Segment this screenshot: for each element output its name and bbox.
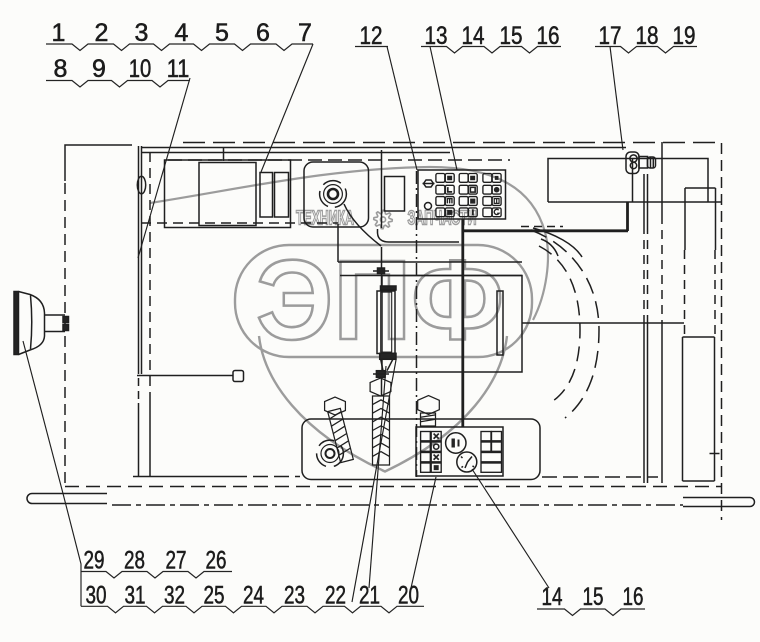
svg-text:26: 26	[206, 547, 227, 575]
svg-text:31: 31	[125, 582, 146, 610]
svg-text:20: 20	[398, 582, 419, 610]
svg-text:24: 24	[243, 582, 264, 610]
svg-text:25: 25	[204, 582, 225, 610]
svg-text:8: 8	[54, 55, 68, 83]
svg-text:1: 1	[52, 19, 66, 47]
svg-text:13: 13	[425, 22, 448, 50]
svg-text:14: 14	[542, 583, 563, 611]
svg-text:11: 11	[167, 55, 190, 83]
svg-text:15: 15	[583, 583, 604, 611]
svg-text:5: 5	[215, 19, 229, 47]
svg-text:4: 4	[175, 19, 189, 47]
svg-text:17: 17	[599, 22, 622, 50]
svg-text:21: 21	[359, 582, 380, 610]
svg-text:27: 27	[166, 547, 187, 575]
svg-text:6: 6	[256, 19, 270, 47]
svg-text:32: 32	[164, 582, 185, 610]
svg-text:3: 3	[135, 19, 149, 47]
svg-text:9: 9	[92, 55, 106, 83]
svg-text:23: 23	[284, 582, 305, 610]
svg-text:16: 16	[537, 22, 560, 50]
svg-text:29: 29	[84, 547, 105, 575]
svg-text:2: 2	[95, 19, 109, 47]
svg-text:19: 19	[673, 22, 696, 50]
svg-text:ЭПФ: ЭПФ	[256, 237, 504, 363]
svg-text:10: 10	[129, 55, 152, 83]
svg-text:14: 14	[462, 22, 485, 50]
svg-text:30: 30	[86, 582, 107, 610]
svg-text:18: 18	[636, 22, 659, 50]
svg-text:15: 15	[500, 22, 523, 50]
svg-text:12: 12	[360, 22, 383, 50]
svg-text:28: 28	[124, 547, 145, 575]
svg-text:7: 7	[298, 19, 312, 47]
svg-text:22: 22	[325, 582, 346, 610]
svg-text:16: 16	[623, 583, 644, 611]
